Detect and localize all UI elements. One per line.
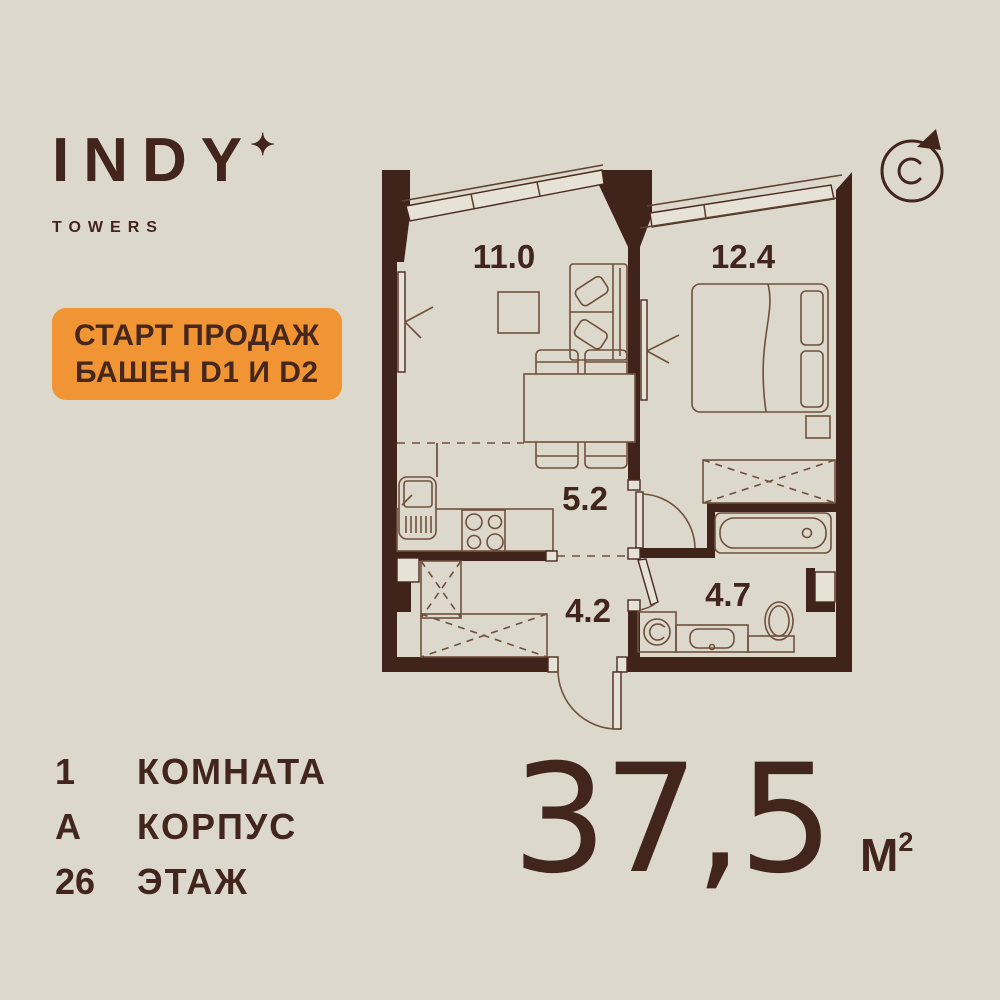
detail-rooms-value: 1 [55, 744, 137, 799]
total-area-unit: М2 [860, 828, 913, 882]
room-label-kitchen-corridor: 5.2 [562, 480, 608, 517]
sofa [570, 264, 627, 360]
dining-set [524, 350, 635, 468]
entrance-door [548, 657, 627, 729]
washing-machine [638, 612, 676, 652]
flyer-canvas: 11.0 12.4 5.2 4.2 4.7 INDY✦ TOWERS СТАРТ… [0, 0, 1000, 1000]
detail-building: А КОРПУС [55, 799, 327, 854]
window-band-living [402, 165, 604, 221]
detail-floor-value: 26 [55, 854, 137, 909]
room-label-hallway: 4.2 [565, 592, 611, 629]
bedroom-door [628, 480, 695, 548]
room-label-living: 11.0 [473, 238, 535, 275]
total-area: 37,5 М2 [512, 745, 913, 895]
detail-building-value: А [55, 799, 137, 854]
compass-icon [882, 129, 942, 201]
detail-building-label: КОРПУС [137, 799, 297, 854]
brand-name: INDY✦ [52, 130, 289, 203]
detail-rooms-label: КОМНАТА [137, 744, 327, 799]
toilet [765, 602, 793, 640]
stove [462, 510, 505, 551]
badge-line-1: СТАРТ ПРОДАЖ [74, 317, 320, 354]
bed [692, 284, 828, 412]
detail-floor-label: ЭТАЖ [137, 854, 249, 909]
bathroom-sink [676, 625, 794, 652]
dining-table [524, 374, 635, 442]
shaft-niche [397, 558, 419, 582]
detail-floor: 26 ЭТАЖ [55, 854, 327, 909]
room-label-bathroom: 4.7 [705, 576, 751, 613]
total-area-value: 37,5 [512, 745, 830, 895]
window-left-wall [398, 272, 433, 372]
brand-logo: INDY✦ TOWERS [52, 130, 289, 237]
bathtub [715, 513, 831, 553]
wardrobe [421, 614, 547, 657]
nightstand [806, 416, 830, 438]
brand-subtitle: TOWERS [52, 219, 289, 237]
window-partition [641, 300, 679, 400]
shaft-niche [815, 572, 835, 602]
wardrobe [703, 460, 835, 503]
side-table [498, 292, 539, 333]
detail-rooms: 1 КОМНАТА [55, 744, 327, 799]
room-label-bedroom: 12.4 [711, 238, 776, 275]
wardrobe [421, 561, 461, 618]
sales-start-badge: СТАРТ ПРОДАЖ БАШЕН D1 И D2 [52, 308, 342, 400]
sparkle-icon: ✦ [250, 115, 289, 177]
kitchen-sink [399, 477, 436, 539]
apartment-details: 1 КОМНАТА А КОРПУС 26 ЭТАЖ [55, 744, 327, 909]
badge-line-2: БАШЕН D1 И D2 [74, 354, 320, 391]
